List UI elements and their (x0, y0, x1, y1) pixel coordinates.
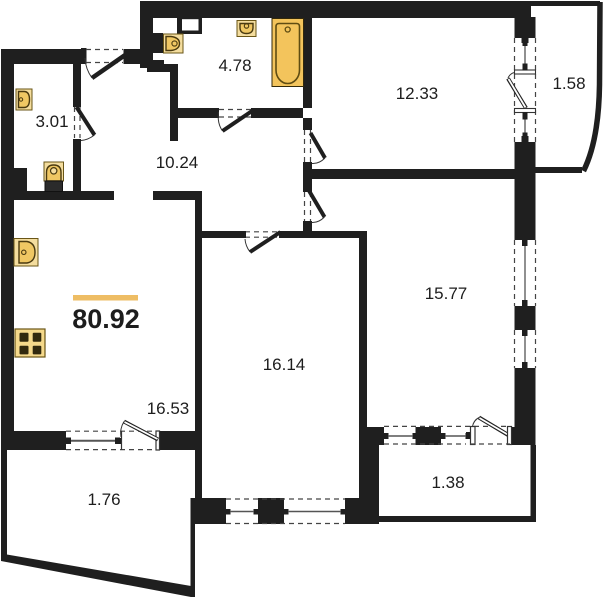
svg-text:15.77: 15.77 (425, 284, 468, 303)
svg-text:1.76: 1.76 (87, 490, 120, 509)
svg-text:3.01: 3.01 (35, 112, 68, 131)
svg-text:16.53: 16.53 (147, 399, 190, 418)
svg-text:10.24: 10.24 (156, 153, 199, 172)
svg-text:16.14: 16.14 (263, 355, 306, 374)
svg-text:1.58: 1.58 (552, 74, 585, 93)
svg-text:80.92: 80.92 (72, 304, 140, 334)
svg-text:1.38: 1.38 (431, 473, 464, 492)
svg-text:12.33: 12.33 (396, 84, 439, 103)
svg-text:4.78: 4.78 (218, 56, 251, 75)
